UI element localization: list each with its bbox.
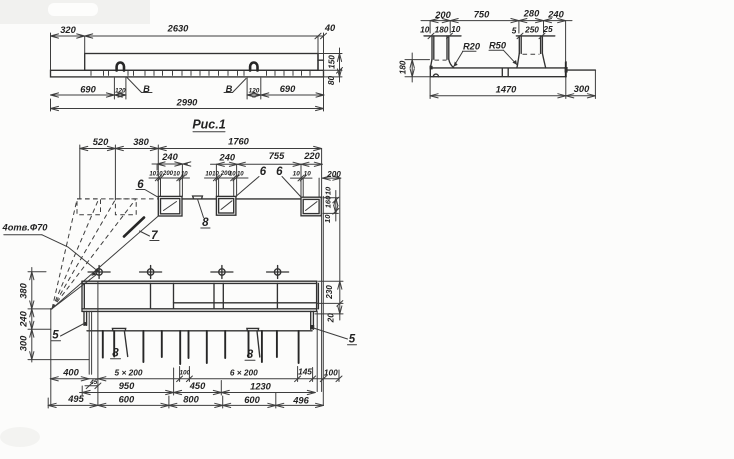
svg-text:520: 520 xyxy=(93,137,109,147)
svg-text:496: 496 xyxy=(292,396,309,406)
svg-text:240: 240 xyxy=(19,310,29,327)
svg-text:8: 8 xyxy=(247,349,254,361)
svg-text:10: 10 xyxy=(229,171,236,177)
svg-text:300: 300 xyxy=(574,84,590,94)
svg-text:230: 230 xyxy=(324,285,334,300)
svg-text:1470: 1470 xyxy=(496,85,518,95)
svg-text:45: 45 xyxy=(89,379,98,386)
svg-text:180: 180 xyxy=(398,60,408,74)
svg-text:10: 10 xyxy=(237,171,244,177)
svg-text:800: 800 xyxy=(183,395,199,405)
svg-text:8: 8 xyxy=(112,348,119,360)
svg-text:8: 8 xyxy=(202,217,209,229)
svg-text:10: 10 xyxy=(323,214,332,223)
svg-text:150: 150 xyxy=(327,55,337,69)
svg-text:1230: 1230 xyxy=(250,382,272,392)
svg-text:240: 240 xyxy=(547,10,564,20)
svg-text:10: 10 xyxy=(324,186,333,195)
svg-text:180: 180 xyxy=(435,25,449,35)
svg-text:600: 600 xyxy=(119,395,135,405)
svg-text:200: 200 xyxy=(434,10,451,20)
svg-text:450: 450 xyxy=(189,381,206,391)
svg-text:145: 145 xyxy=(298,367,312,377)
svg-text:240: 240 xyxy=(161,152,178,162)
svg-text:280: 280 xyxy=(523,9,540,19)
svg-text:300: 300 xyxy=(19,335,29,351)
svg-text:6 × 200: 6 × 200 xyxy=(230,368,258,378)
svg-text:220: 220 xyxy=(303,151,320,161)
svg-text:В: В xyxy=(226,84,233,94)
svg-text:320: 320 xyxy=(60,25,76,35)
svg-text:950: 950 xyxy=(119,381,135,391)
svg-text:100: 100 xyxy=(324,368,338,378)
svg-text:25: 25 xyxy=(542,24,553,34)
svg-text:690: 690 xyxy=(280,84,296,94)
svg-text:400: 400 xyxy=(62,368,79,378)
svg-text:690: 690 xyxy=(80,85,96,95)
svg-text:1760: 1760 xyxy=(228,137,250,147)
svg-text:4отв.Ф70: 4отв.Ф70 xyxy=(2,223,49,233)
svg-text:100: 100 xyxy=(179,370,190,377)
svg-text:750: 750 xyxy=(474,10,490,20)
svg-text:40: 40 xyxy=(324,23,336,33)
svg-text:6: 6 xyxy=(276,166,283,178)
svg-text:10: 10 xyxy=(173,171,180,177)
svg-text:Рис.1: Рис.1 xyxy=(192,118,225,132)
svg-text:380: 380 xyxy=(19,282,29,298)
svg-text:240: 240 xyxy=(219,152,236,162)
svg-text:380: 380 xyxy=(133,137,149,147)
svg-text:10: 10 xyxy=(304,170,312,177)
svg-text:5 × 200: 5 × 200 xyxy=(115,368,143,378)
svg-text:10: 10 xyxy=(451,24,461,34)
svg-text:10: 10 xyxy=(293,170,301,177)
svg-text:2630: 2630 xyxy=(167,24,190,34)
svg-text:120: 120 xyxy=(249,87,260,94)
svg-text:120: 120 xyxy=(115,87,126,94)
svg-text:200: 200 xyxy=(326,169,341,179)
svg-text:R20: R20 xyxy=(463,42,481,52)
svg-text:R50: R50 xyxy=(489,41,507,51)
svg-text:755: 755 xyxy=(269,151,285,161)
svg-text:5: 5 xyxy=(52,330,59,342)
svg-text:80: 80 xyxy=(326,76,336,86)
svg-text:600: 600 xyxy=(244,395,260,405)
svg-text:5: 5 xyxy=(349,334,356,346)
svg-text:250: 250 xyxy=(524,25,539,35)
svg-text:5: 5 xyxy=(512,26,517,36)
svg-text:20: 20 xyxy=(326,313,336,324)
svg-text:160: 160 xyxy=(324,195,333,208)
svg-text:200: 200 xyxy=(162,171,174,177)
svg-text:495: 495 xyxy=(67,394,84,404)
svg-text:6: 6 xyxy=(260,166,267,178)
svg-text:10: 10 xyxy=(420,25,430,35)
svg-text:В: В xyxy=(143,84,150,94)
svg-text:10: 10 xyxy=(181,171,188,177)
svg-text:10: 10 xyxy=(212,171,219,177)
svg-text:2990: 2990 xyxy=(176,98,199,108)
